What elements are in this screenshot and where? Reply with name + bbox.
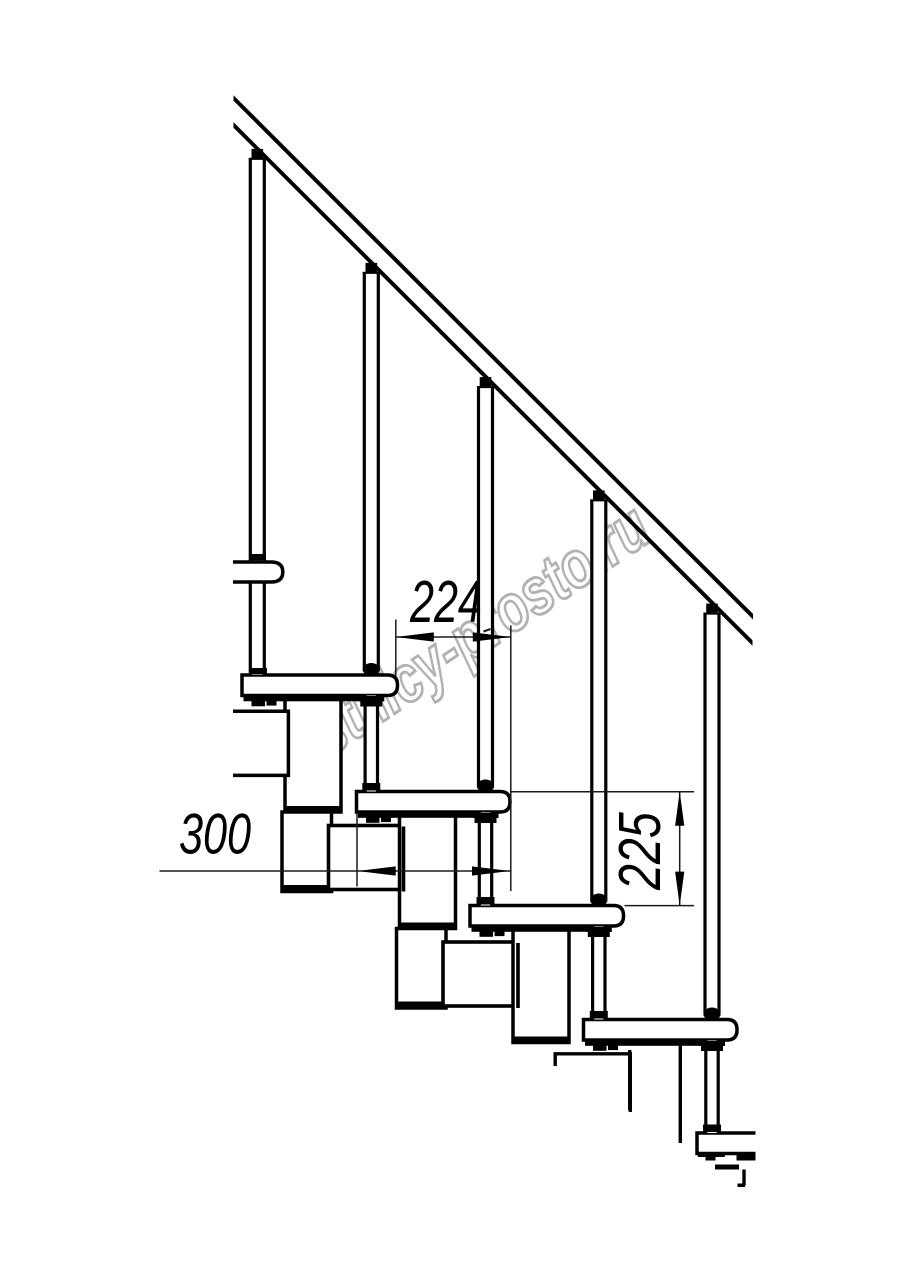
svg-text:224: 224 xyxy=(409,568,482,634)
svg-text:300: 300 xyxy=(179,801,251,865)
svg-text:225: 225 xyxy=(608,812,673,891)
